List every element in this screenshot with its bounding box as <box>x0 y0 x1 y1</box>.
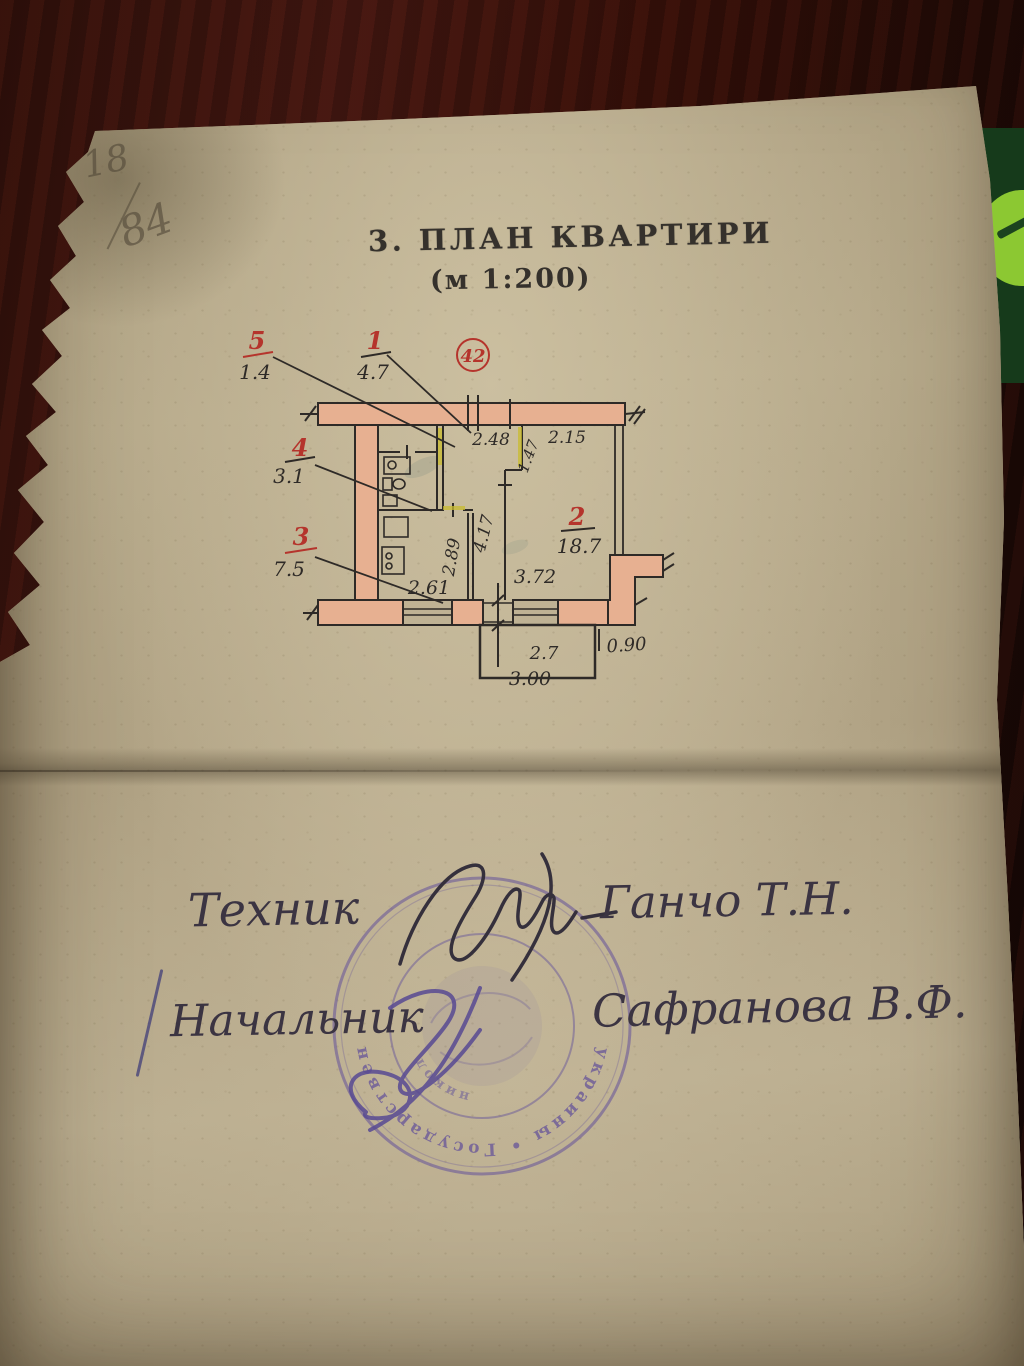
dim-room-top: 2.15 <box>547 428 586 448</box>
room-2-number: 2 <box>568 502 586 531</box>
dim-kitchen-width: 2.61 <box>407 577 450 599</box>
photo-of-document: 18 84 3. ПЛАН КВАРТИРИ (м 1:200) <box>0 0 1024 1366</box>
room-5-number: 5 <box>249 326 266 355</box>
room-5-area: 1.4 <box>239 360 271 384</box>
right-party-wall <box>615 425 623 555</box>
bathroom-kitchen-fixtures <box>382 457 410 574</box>
fold-crease <box>0 748 1024 786</box>
signature-role-chief: Начальник <box>170 992 425 1047</box>
dim-balcony-outer: 3.00 <box>509 668 551 690</box>
dim-balcony-width: 2.7 <box>529 643 559 664</box>
dim-room-bottom: 3.72 <box>514 566 556 588</box>
flat-number: 42 <box>460 346 485 367</box>
pencil-note-bottom: 84 <box>112 193 179 257</box>
room-3-number: 3 <box>293 522 310 551</box>
pencil-smudges <box>401 451 530 557</box>
pen-slash-mark <box>136 969 164 1077</box>
room-1-area: 4.7 <box>356 360 389 384</box>
signature-name-safranova: Сафранова В.Ф. <box>591 975 967 1038</box>
floor-plan-drawing: 5 1.4 1 4.7 4 3.1 3 7.5 2 18.7 42 <box>215 315 675 700</box>
dim-step: 0.90 <box>606 634 647 658</box>
room-labels: 5 1.4 1 4.7 4 3.1 3 7.5 2 18.7 <box>239 326 601 581</box>
signature-name-gancho: Ганчо Т.Н. <box>600 872 854 929</box>
signature-role-technician: Техник <box>188 881 360 938</box>
room-2-area: 18.7 <box>557 534 602 558</box>
document-page: 18 84 3. ПЛАН КВАРТИРИ (м 1:200) <box>0 0 1024 1366</box>
fold-crease-line <box>0 770 717 772</box>
room-4-area: 3.1 <box>273 464 305 488</box>
technician-signature <box>392 852 627 997</box>
room-1-number: 1 <box>367 326 384 355</box>
dim-hall-top: 2.48 <box>471 430 510 450</box>
section-title: 3. ПЛАН КВАРТИРИ <box>368 216 774 258</box>
scale-note: (м 1:200) <box>430 263 592 297</box>
room-3-area: 7.5 <box>273 557 305 581</box>
dim-kitchen-depth: 2.89 <box>439 537 465 579</box>
flat-number-badge: 42 <box>457 339 489 371</box>
